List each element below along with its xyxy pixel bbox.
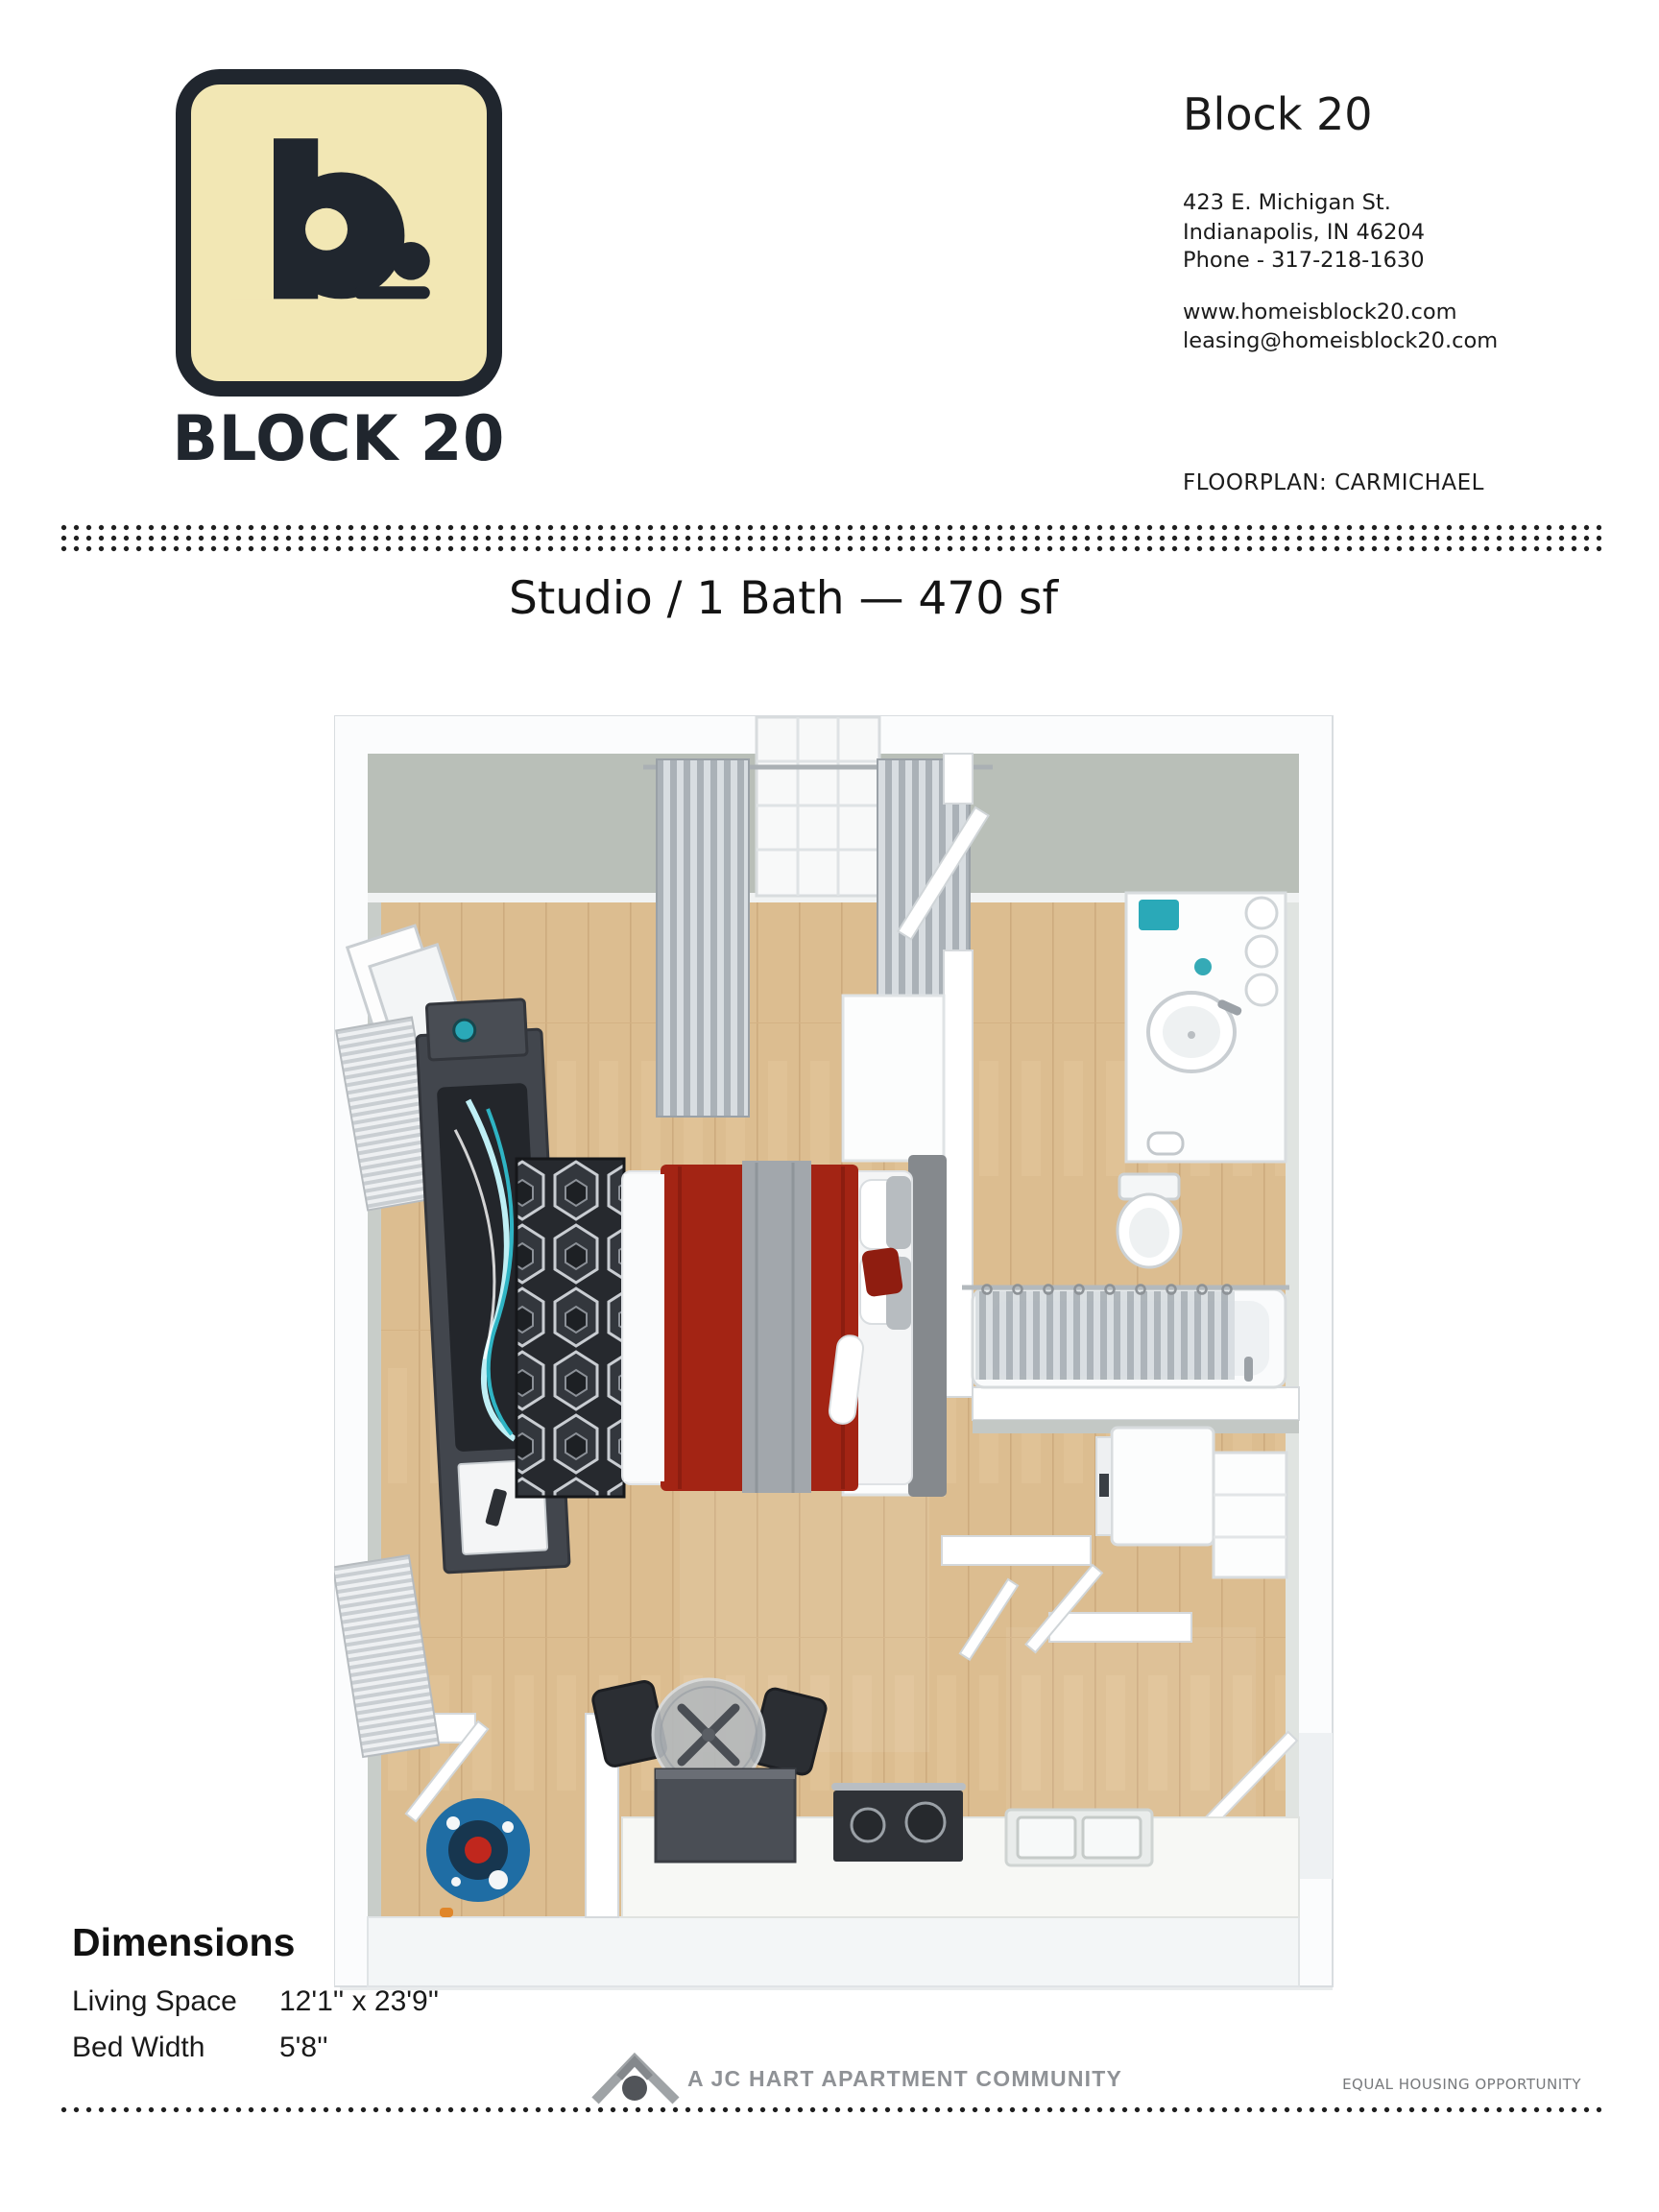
curtain-left [657,759,749,1117]
property-phone: Phone - 317-218-1630 [1183,248,1425,273]
dimension-value: 12'1'' x 23'9'' [279,1985,439,2017]
washer [1112,1428,1214,1545]
plan-title: Studio / 1 Bath — 470 sf [509,572,1058,625]
property-name: Block 20 [1183,88,1373,140]
bathroom-vanity [1126,893,1286,1162]
community-text: A JC HART APARTMENT COMMUNITY [687,2066,1122,2092]
bathroom-wall [973,1387,1299,1420]
b-glyph-icon [231,111,443,351]
equal-housing-text: EQUAL HOUSING OPPORTUNITY [1342,2076,1581,2093]
toilet [1118,1174,1181,1267]
address-line2: Indianapolis, IN 46204 [1183,218,1425,248]
address-line1: 423 E. Michigan St. [1183,188,1425,218]
window-with-blinds [757,717,879,896]
closet-cabinet [1214,1453,1286,1577]
dimension-label: Living Space [72,1985,279,2018]
accent-pillow [861,1247,903,1298]
block20-logo [176,69,502,397]
bathtub-with-curtain [962,1286,1289,1388]
hall-wall-stub [942,1536,1091,1565]
toilet-paper-holder [1148,1133,1183,1154]
dotted-divider-bottom [58,2104,1601,2116]
dimension-value: 5'8'' [279,2032,328,2063]
property-email[interactable]: leasing@homeisblock20.com [1183,328,1498,353]
tub-faucet [1244,1357,1253,1382]
kitchen-cabinet [656,1769,795,1862]
wardrobe-top [843,996,944,1161]
teal-cup [453,1020,475,1042]
floorplan-name-label: FLOORPLAN: CARMICHAEL [1183,470,1484,495]
gray-runner [742,1161,811,1493]
jchart-roof-icon [591,2045,680,2104]
entry-door-frame [1299,1733,1333,1879]
hall-wall-stub-2 [1049,1613,1191,1642]
floorplan-image [334,715,1334,1992]
bottom-wall-face [368,1917,1299,1986]
dimension-row-living-space: Living Space12'1'' x 23'9'' [72,1985,439,2018]
bed [622,1155,947,1497]
logo-wordmark: BLOCK 20 [171,401,507,475]
dimension-row-bed-width: Bed Width5'8'' [72,2032,328,2064]
area-rug [517,1159,624,1497]
property-address: 423 E. Michigan St. Indianapolis, IN 462… [1183,188,1425,248]
teal-towel [1139,900,1179,930]
dimension-label: Bed Width [72,2032,279,2064]
dotted-divider-top [58,522,1601,555]
floorplan-flyer-page: BLOCK 20 Block 20 423 E. Michigan St. In… [0,0,1659,2212]
dimensions-heading: Dimensions [72,1920,295,1965]
property-website[interactable]: www.homeisblock20.com [1183,300,1457,325]
headboard [908,1155,947,1497]
